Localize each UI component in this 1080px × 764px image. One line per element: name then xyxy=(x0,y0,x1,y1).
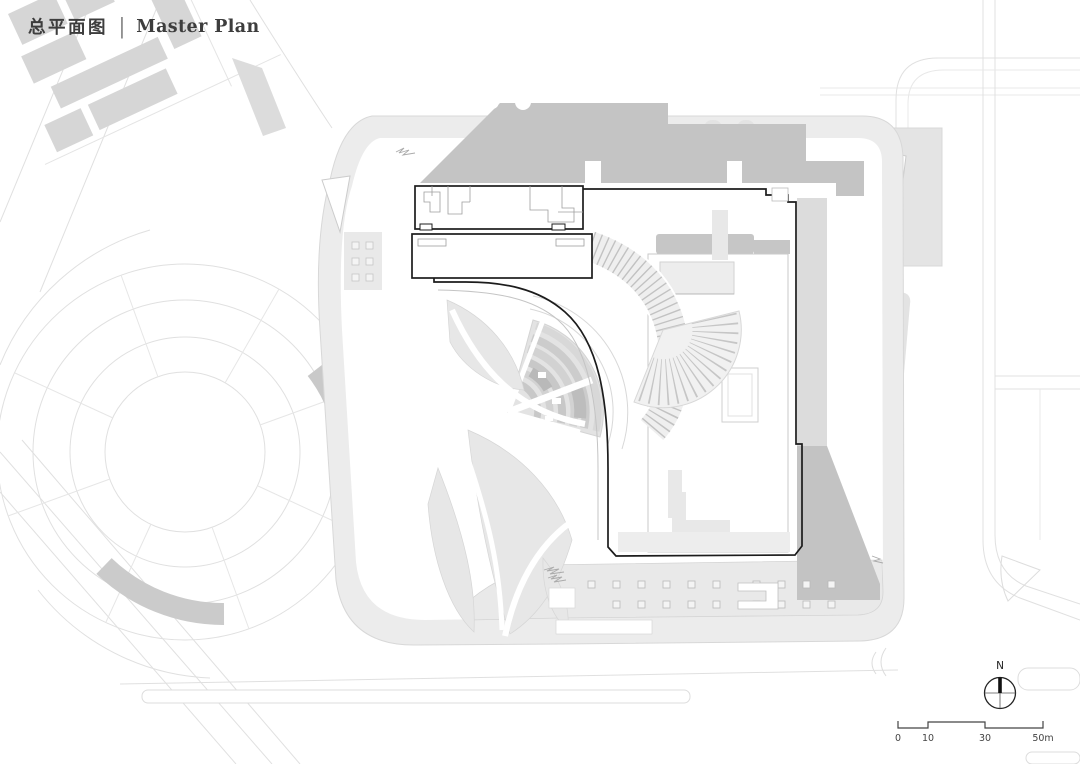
roof-detail xyxy=(712,210,728,260)
road-line xyxy=(120,670,898,684)
traffic-island xyxy=(1001,556,1040,601)
park-spokes xyxy=(8,275,362,629)
title-english: Master Plan xyxy=(136,17,259,37)
road-line xyxy=(881,648,886,676)
arc-buildings-west xyxy=(104,58,349,614)
shadow-notch xyxy=(515,94,531,110)
road-line xyxy=(995,0,1080,604)
roof-strip xyxy=(618,532,790,552)
lightwell xyxy=(722,368,758,422)
scale-tick-50m: 50m xyxy=(1032,733,1053,744)
park-ring xyxy=(105,372,265,532)
plaza-cutout xyxy=(556,620,652,634)
west-planter-pad xyxy=(344,232,382,290)
north-bar-b xyxy=(412,234,592,278)
shadow-notch xyxy=(485,95,499,109)
north-label: N xyxy=(996,660,1004,672)
east-building-roof xyxy=(754,240,790,254)
median-strip xyxy=(1018,668,1080,690)
arc-building xyxy=(232,58,286,136)
building-shadow-east xyxy=(797,198,827,446)
shadow-gap xyxy=(727,161,742,184)
site-plan-drawing: N 0 10 30 50m xyxy=(0,0,1080,764)
boundary-notch xyxy=(772,188,788,201)
scale-tick-10: 10 xyxy=(922,733,934,744)
scale-bar-line xyxy=(898,721,1043,728)
median-strip xyxy=(1026,752,1080,764)
plaza-cutout xyxy=(549,588,575,608)
master-plan-canvas: N 0 10 30 50m 总平面图 | Master Plan xyxy=(0,0,1080,764)
east-building-roof xyxy=(656,234,754,254)
north-arrow: N xyxy=(985,660,1016,709)
scale-tick-0: 0 xyxy=(895,733,901,744)
fan-dark-patch xyxy=(576,387,580,418)
park-ring xyxy=(33,300,337,604)
park-ring xyxy=(0,230,150,365)
page-title: 总平面图 | Master Plan xyxy=(28,14,260,39)
compass-needle xyxy=(998,678,1002,694)
road-line xyxy=(983,0,1080,620)
scale-tick-30: 30 xyxy=(979,733,991,744)
scale-bar: 0 10 30 50m xyxy=(895,721,1054,744)
bar-a-notch xyxy=(552,224,565,230)
shadow-gap xyxy=(585,161,601,184)
park-ring xyxy=(0,264,373,640)
road-medians xyxy=(142,668,1080,764)
arc-building xyxy=(104,566,224,614)
title-divider: | xyxy=(119,14,125,39)
title-chinese: 总平面图 xyxy=(28,14,108,39)
bar-a-notch xyxy=(420,224,432,230)
median-strip xyxy=(142,690,690,703)
